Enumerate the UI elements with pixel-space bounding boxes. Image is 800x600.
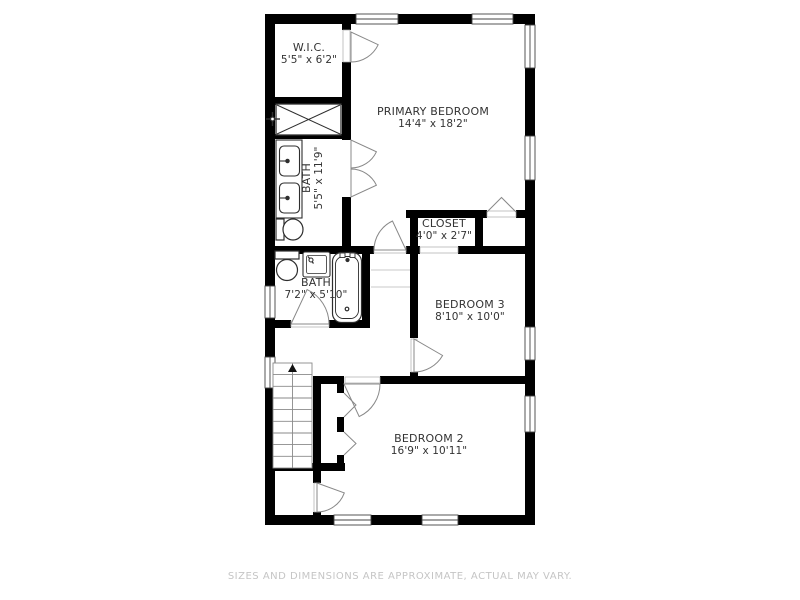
- room-label-bedroom-2: BEDROOM 2 16'9" x 10'11": [391, 432, 467, 458]
- window-icon: [422, 515, 458, 525]
- wall-segment: [313, 376, 321, 471]
- room-name: CLOSET: [416, 217, 472, 230]
- door-jamb: [487, 211, 516, 217]
- wall-segment: [313, 512, 321, 525]
- disclaimer-text: SIZES AND DIMENSIONS ARE APPROXIMATE, AC…: [0, 571, 800, 582]
- wall-segment: [475, 210, 483, 254]
- door-jamb: [343, 30, 350, 62]
- room-dims: 14'4" x 18'2": [377, 118, 489, 131]
- wall-segment: [362, 246, 370, 328]
- window-icon: [265, 286, 275, 318]
- room-name: W.I.C.: [281, 41, 337, 54]
- room-dims: 7'2" x 5'10": [285, 289, 348, 302]
- room-label-wic: W.I.C. 5'5" x 6'2": [281, 41, 337, 67]
- sink-icon: [303, 252, 330, 277]
- bifold-door-icon: [344, 432, 356, 455]
- sliding-door-icon: [420, 247, 458, 253]
- wall-segment: [516, 210, 525, 218]
- door-swing-icon: [374, 221, 406, 250]
- room-label-hall-bath: BATH 7'2" x 5'10": [285, 276, 348, 302]
- room-dims: 5'5" x 11'9": [313, 147, 326, 210]
- room-label-primary-bath: BATH 5'5" x 11'9": [300, 147, 326, 210]
- door-swing-icon: [414, 339, 443, 372]
- hallway-lines: [371, 270, 410, 287]
- door-swing-icon: [351, 32, 378, 62]
- window-icon: [472, 14, 513, 24]
- wall-segment: [313, 471, 321, 483]
- wall-segment: [525, 14, 535, 525]
- wall-segment: [337, 376, 344, 393]
- shower-icon: [266, 104, 341, 135]
- toilet-icon: [276, 219, 303, 240]
- room-dims: 5'5" x 6'2": [281, 54, 337, 67]
- room-label-bedroom-3: BEDROOM 3 8'10" x 10'0": [435, 298, 505, 324]
- door-swing-icon: [351, 169, 376, 197]
- room-dims: 16'9" x 10'11": [391, 445, 467, 458]
- bifold-door-icon: [487, 198, 516, 213]
- wall-segment: [337, 455, 344, 471]
- window-icon: [334, 515, 371, 525]
- wall-segment: [342, 24, 351, 30]
- room-dims: 4'0" x 2'7": [416, 230, 472, 243]
- vanity-icon: [276, 140, 302, 218]
- door-swing-icon: [351, 140, 376, 168]
- room-name: BATH: [285, 276, 348, 289]
- floor-plan-page: W.I.C. 5'5" x 6'2" PRIMARY BEDROOM 14'4"…: [0, 0, 800, 600]
- wall-segment: [337, 417, 344, 432]
- window-icon: [525, 25, 535, 68]
- room-name: BATH: [300, 147, 313, 210]
- room-label-primary-bedroom: PRIMARY BEDROOM 14'4" x 18'2": [377, 105, 489, 131]
- wall-segment: [380, 376, 525, 384]
- room-name: BEDROOM 3: [435, 298, 505, 311]
- wall-segment: [342, 197, 351, 254]
- window-icon: [525, 327, 535, 360]
- door-jamb: [345, 377, 380, 383]
- wall-segment: [342, 62, 351, 140]
- window-icon: [525, 136, 535, 180]
- window-icon: [356, 14, 398, 24]
- room-label-closet: CLOSET 4'0" x 2'7": [416, 217, 472, 243]
- stairs-icon: [273, 363, 312, 468]
- door-swing-icon: [317, 483, 344, 512]
- wall-segment: [275, 320, 291, 328]
- wall-segment: [458, 246, 525, 254]
- window-icon: [525, 396, 535, 432]
- room-dims: 8'10" x 10'0": [435, 311, 505, 324]
- room-name: PRIMARY BEDROOM: [377, 105, 489, 118]
- floor-plan-svg: [0, 0, 800, 600]
- room-name: BEDROOM 2: [391, 432, 467, 445]
- wall-segment: [265, 515, 535, 525]
